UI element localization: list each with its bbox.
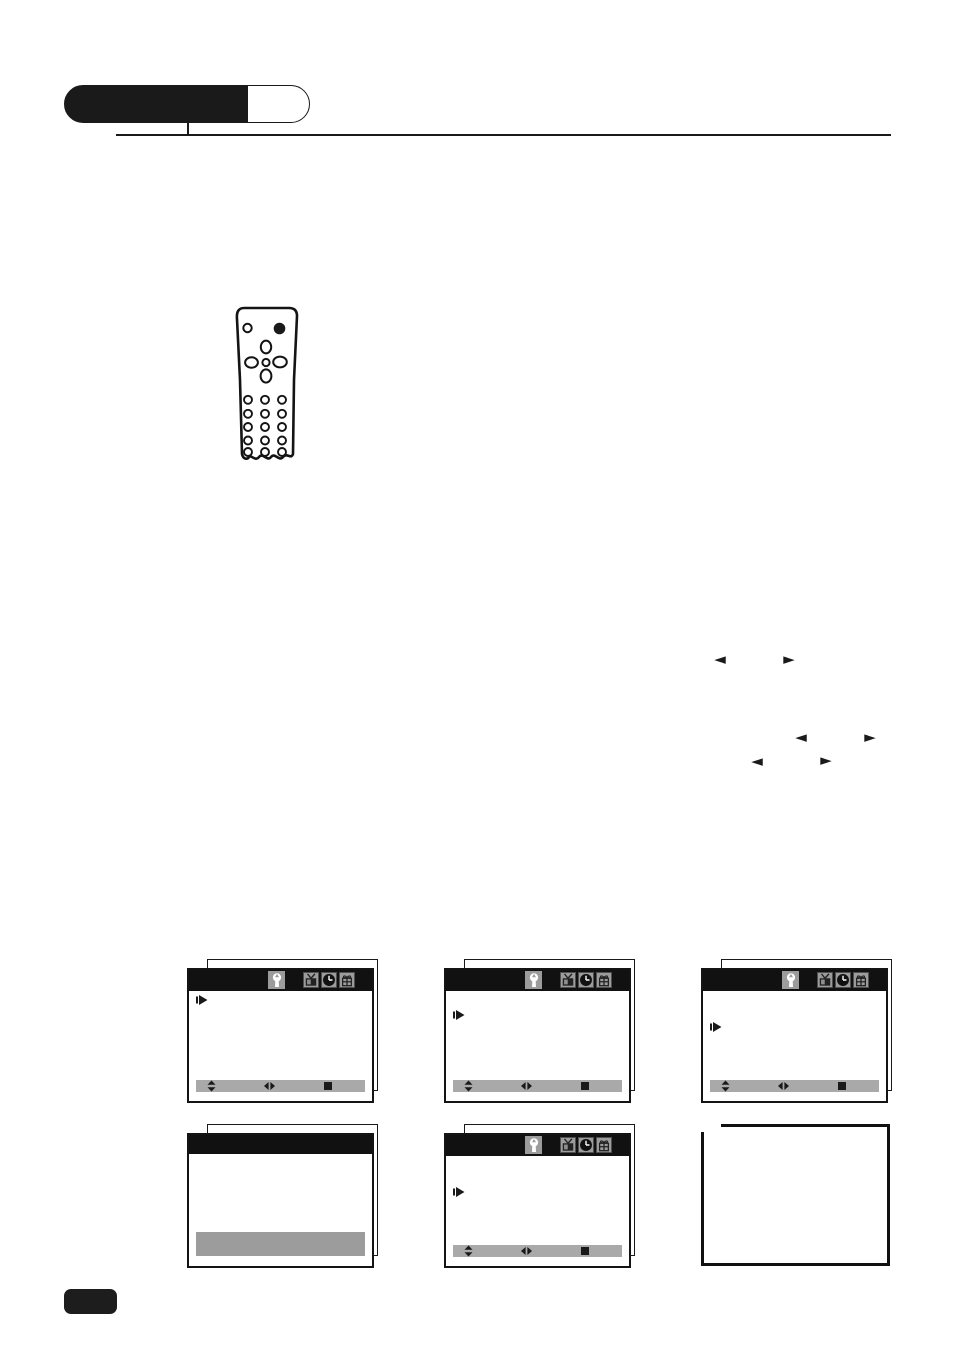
osd-control-bar: [453, 1080, 622, 1092]
osd-menu-tabs: [560, 1137, 612, 1153]
stop-square-icon: [838, 1082, 846, 1090]
gift-icon: [853, 972, 869, 988]
manual-page: ◄ ► ◄ ► ◄ ►: [0, 0, 954, 1355]
gift-icon: [596, 972, 612, 988]
screen-front: [187, 968, 374, 1103]
up-down-arrows-icon: [721, 1081, 730, 1092]
right-arrow-glyph: ►: [818, 753, 834, 768]
frame-bottom-line: [701, 1263, 890, 1266]
left-arrow-glyph: ◄: [793, 730, 809, 745]
cursor-arrow-icon: [453, 1187, 465, 1197]
tv-icon: [303, 972, 319, 988]
up-down-arrows-icon: [464, 1081, 473, 1092]
frame-left-line: [701, 1132, 704, 1266]
header-rule: [116, 134, 891, 136]
osd-titlebar: [703, 970, 886, 991]
left-right-arrows-icon: [521, 1247, 532, 1256]
up-down-arrows-icon: [207, 1081, 216, 1092]
stop-square-icon: [581, 1082, 589, 1090]
tv-icon: [817, 972, 833, 988]
osd-screen-3: [701, 959, 893, 1105]
frame-top-line: [721, 1124, 890, 1127]
osd-menu-tabs: [817, 972, 869, 988]
clock-icon: [835, 972, 851, 988]
left-right-arrows-icon: [778, 1082, 789, 1091]
osd-control-bar: [453, 1245, 622, 1257]
screen-front: [444, 1133, 631, 1268]
stop-square-icon: [324, 1082, 332, 1090]
power-button: [274, 323, 286, 335]
left-right-arrows-icon: [521, 1082, 532, 1091]
up-down-arrows-icon: [464, 1246, 473, 1257]
osd-screen-6: [701, 1124, 893, 1270]
screen-front: [701, 968, 888, 1103]
right-arrow-glyph: ►: [781, 652, 797, 667]
wrench-icon: [268, 971, 285, 989]
remote-control-illustration: [230, 305, 304, 467]
cursor-arrow-icon: [453, 1010, 465, 1020]
stop-square-icon: [581, 1247, 589, 1255]
screen-front: [187, 1133, 374, 1268]
left-right-arrows-icon: [264, 1082, 275, 1091]
section-header-badge: [64, 85, 310, 123]
osd-menu-tabs: [303, 972, 355, 988]
osd-screen-5: [444, 1124, 636, 1270]
osd-menu-tabs: [560, 972, 612, 988]
highlighted-row: [196, 1232, 365, 1256]
gift-icon: [339, 972, 355, 988]
tv-icon: [560, 1137, 576, 1153]
osd-control-bar: [710, 1080, 879, 1092]
wrench-icon: [782, 971, 799, 989]
osd-control-bar: [196, 1080, 365, 1092]
osd-screen-4: [187, 1124, 379, 1270]
screen-front: [444, 968, 631, 1103]
clock-icon: [578, 972, 594, 988]
left-arrow-glyph: ◄: [749, 754, 765, 769]
wrench-icon: [525, 1136, 542, 1154]
cursor-arrow-icon: [710, 1022, 722, 1032]
right-arrow-glyph: ►: [862, 730, 878, 745]
wrench-icon: [525, 971, 542, 989]
osd-screen-1: [187, 959, 379, 1105]
osd-titlebar: [189, 970, 372, 991]
clock-icon: [578, 1137, 594, 1153]
left-arrow-glyph: ◄: [712, 652, 728, 667]
frame-right-line: [887, 1124, 890, 1266]
osd-titlebar: [446, 970, 629, 991]
page-number-badge: [64, 1289, 117, 1314]
clock-icon: [321, 972, 337, 988]
tv-icon: [560, 972, 576, 988]
gift-icon: [596, 1137, 612, 1153]
osd-screen-2: [444, 959, 636, 1105]
osd-titlebar: [446, 1135, 629, 1156]
osd-titlebar-plain: [189, 1135, 372, 1154]
cursor-arrow-icon: [196, 995, 208, 1005]
